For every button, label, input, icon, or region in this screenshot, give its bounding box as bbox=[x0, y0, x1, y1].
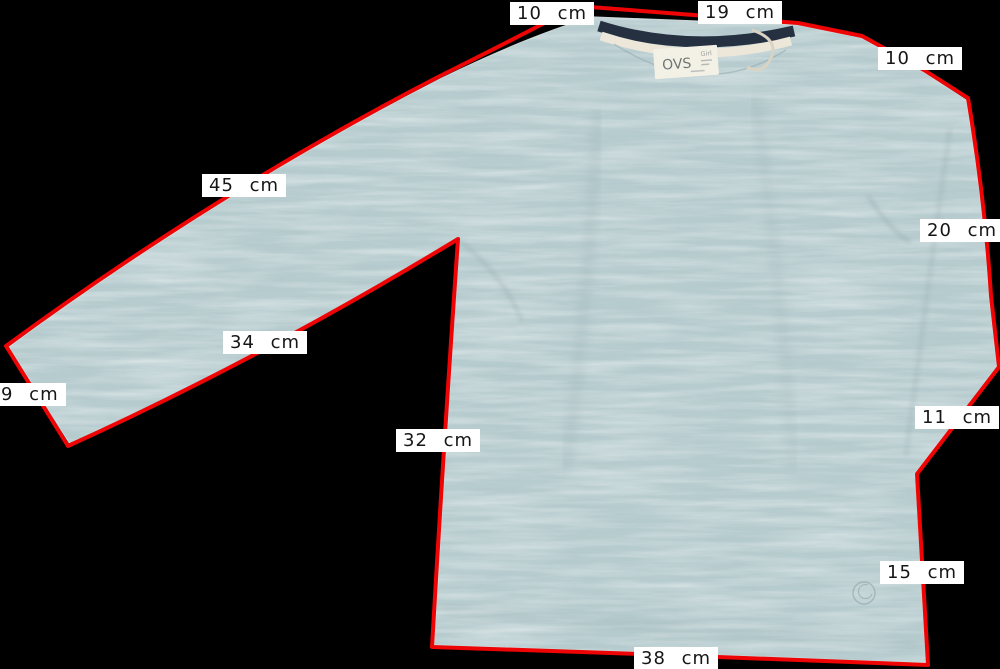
measurement-label-side-left: 32 cm bbox=[396, 429, 480, 452]
brand-tag: OVS Girl bbox=[653, 45, 719, 79]
measurement-label-side-right: 15 cm bbox=[880, 561, 964, 584]
measurement-label-sleeve-top-left: 45 cm bbox=[202, 174, 286, 197]
brand-tag-text: OVS bbox=[662, 56, 692, 74]
measurement-label-cuff-left: 9 cm bbox=[0, 383, 66, 406]
measurement-label-hem-width: 38 cm bbox=[634, 647, 718, 669]
annotated-product-photo: OVS Girl 10 cm 19 cm 10 cm 45 cm 20 cm 3… bbox=[0, 0, 1000, 669]
measurement-label-shoulder-right: 10 cm bbox=[878, 47, 962, 70]
brand-tag-line-text: Girl bbox=[700, 49, 712, 58]
measurement-label-shoulder-left: 10 cm bbox=[510, 2, 594, 25]
measurement-label-sleeve-right: 20 cm bbox=[920, 219, 1000, 242]
tshirt-photo-canvas: OVS Girl bbox=[0, 0, 1000, 669]
measurement-label-neck-width: 19 cm bbox=[698, 1, 782, 24]
measurement-label-sleeve-under-left: 34 cm bbox=[223, 331, 307, 354]
measurement-label-cuff-right: 11 cm bbox=[915, 406, 999, 429]
